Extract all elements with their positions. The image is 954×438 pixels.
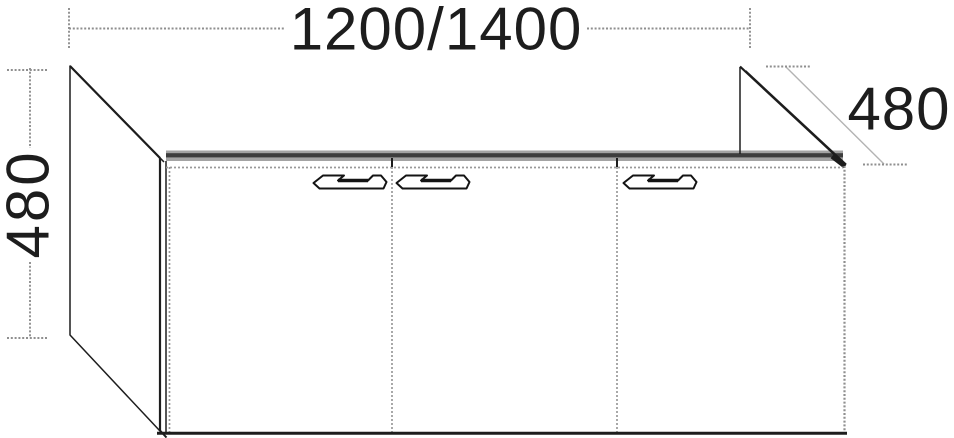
top-band-dark-core (166, 153, 843, 157)
left-panel-face (70, 66, 160, 431)
left-side-panel (70, 66, 167, 438)
height-dimension-label: 480 (0, 149, 62, 258)
vanity-cabinet (70, 66, 847, 438)
depth-dimension-label: 480 (847, 76, 950, 143)
drawing-canvas: 1200/1400 480 480 (0, 0, 954, 438)
right-panel-top-edge-inner (746, 71, 847, 165)
width-dimension-label: 1200/1400 (290, 0, 583, 63)
vanity-technical-drawing: 1200/1400 480 480 (0, 0, 954, 438)
cabinet-top-edge-band (166, 151, 843, 162)
front-face (167, 161, 843, 433)
